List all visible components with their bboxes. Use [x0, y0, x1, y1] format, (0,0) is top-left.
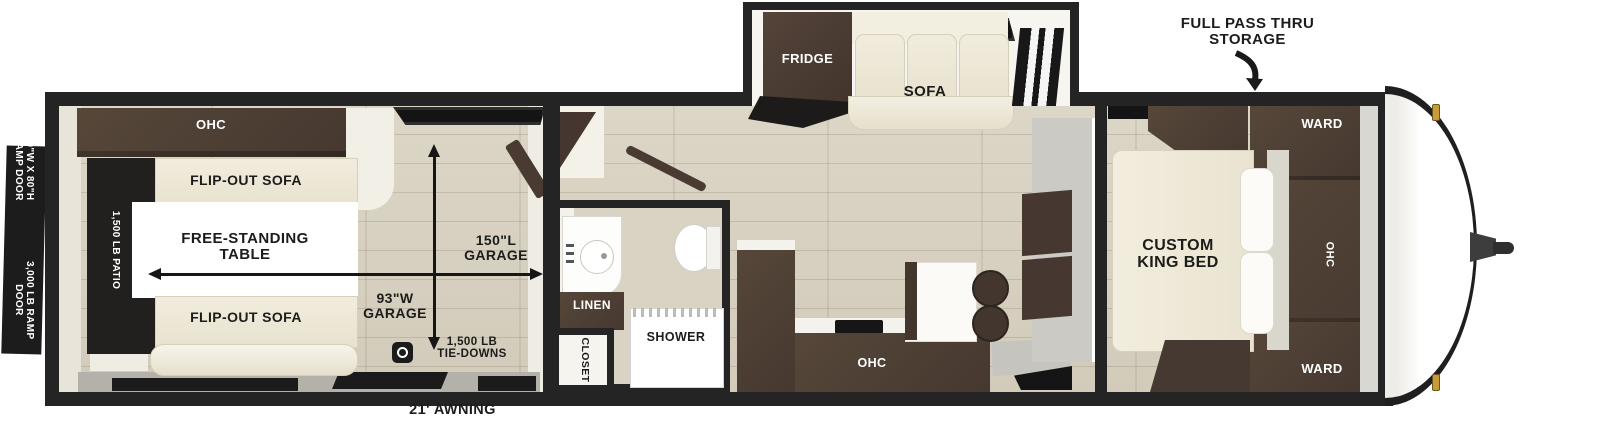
hitch-bar: [1493, 242, 1514, 254]
pass-thru-arrow: [1228, 50, 1272, 92]
garage-width-arrowhead-top: [428, 144, 440, 157]
tie-down-icon: [392, 342, 413, 363]
ramp-door-size-label: 90"W X 80"H RAMP DOOR: [10, 129, 34, 207]
wall-bottom: [45, 392, 1393, 406]
garage-length-arrowhead-right: [530, 268, 543, 280]
garage-ohc-cabinet: [77, 108, 346, 157]
wardrobe-top-label: WARD: [1288, 117, 1356, 131]
kitchen-counter-tall: [737, 250, 795, 392]
kitchen-ohc-label: OHC: [820, 357, 924, 370]
free-standing-table-label: FREE-STANDING TABLE: [150, 231, 340, 263]
king-bed-label: CUSTOM KING BED: [1108, 238, 1248, 272]
bathroom-sink: [580, 240, 614, 274]
sofa-seat: [848, 96, 1014, 130]
shower-pan: [630, 308, 724, 388]
patio-step-notch: [90, 354, 148, 371]
slide-out-wall-top: [743, 2, 1079, 10]
rv-floorplan: 90"W X 80"H RAMP DOOR 3,000 LB RAMP DOOR…: [0, 0, 1600, 421]
garage-length-label: 150"L GARAGE: [450, 233, 542, 262]
bed-bench: [1150, 340, 1250, 392]
clearance-light-top: [1432, 104, 1440, 121]
wall-bedroom-divider: [1095, 106, 1107, 392]
garage-length-arrow: [160, 273, 532, 276]
tv-cabinet-upper: [1022, 190, 1072, 256]
bedroom-ohc-label: OHC: [1322, 232, 1335, 278]
slide-out-wall-right: [1070, 2, 1079, 106]
stool-bottom: [972, 305, 1009, 342]
nose-cap: [1385, 86, 1477, 406]
slide-out-wall-left: [743, 2, 752, 106]
ramp-door-rating-label: 3,000 LB RAMP DOOR: [10, 261, 34, 339]
bedroom-front-lining: [1360, 106, 1378, 392]
closet-label: CLOSET: [578, 337, 590, 383]
flip-out-sofa-top-label: FLIP-OUT SOFA: [151, 173, 341, 188]
wardrobe-bottom-label: WARD: [1288, 362, 1356, 376]
wall-top-front: [1062, 92, 1393, 106]
fridge-label: FRIDGE: [765, 52, 850, 66]
slide-window-right: [1012, 28, 1064, 106]
wall-top-rear: [45, 92, 760, 106]
awning-label: 21' AWNING: [370, 403, 535, 418]
stool-top: [972, 270, 1009, 307]
toilet-tank: [706, 226, 721, 270]
tie-downs-label: 1,500 LB TIE-DOWNS: [420, 336, 524, 360]
patio-label: 1,500 LB PATIO: [108, 207, 120, 293]
tv-cabinet-lower: [1022, 256, 1072, 320]
linen-label: LINEN: [560, 299, 624, 312]
garage-window-bottom-left: [112, 378, 298, 391]
shower-glass: [633, 308, 719, 317]
sofa-label: SOFA: [880, 84, 970, 100]
garage-length-arrowhead-left: [148, 268, 161, 280]
wall-rear: [45, 92, 59, 406]
garage-window-bottom-right: [478, 376, 536, 391]
cooktop: [835, 320, 883, 334]
kitchen-peninsula-edge: [905, 262, 917, 340]
garage-width-label: 93"W GARAGE: [350, 291, 440, 320]
bathroom-faucet-dots: [566, 244, 574, 264]
pass-thru-storage-label: FULL PASS THRU STORAGE: [1150, 16, 1345, 48]
shower-label: SHOWER: [630, 331, 722, 344]
flip-out-sofa-bottom-label: FLIP-OUT SOFA: [151, 310, 341, 325]
garage-ohc-label: OHC: [161, 118, 261, 132]
sofa-front-cushion: [150, 344, 358, 376]
clearance-light-bottom: [1432, 374, 1440, 391]
garage-roof-window: [390, 107, 545, 125]
